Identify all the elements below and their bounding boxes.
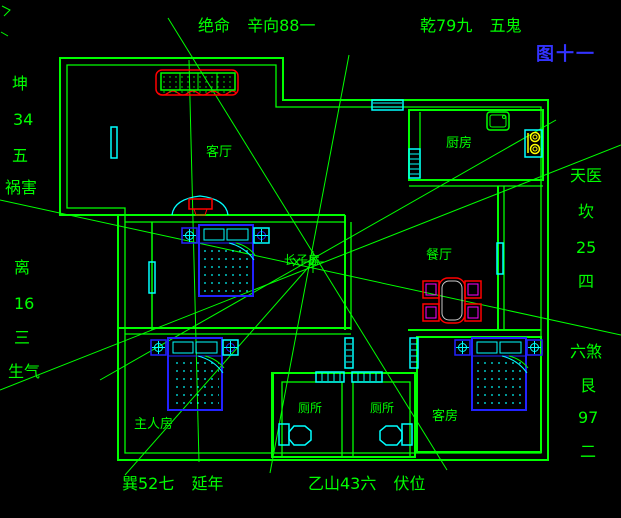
bed-guest — [472, 338, 528, 410]
room-label-toilet-left: 厕所 — [298, 402, 322, 414]
annotation-tianyi: 天医 — [570, 168, 602, 184]
feng-shui-floor-plan: 绝命 辛向88一 乾79九 五鬼 图十一 坤 34 五 祸害 离 16 三 生气… — [0, 0, 621, 518]
furniture — [151, 70, 542, 445]
annotation-li-number: 16 — [14, 296, 34, 312]
kitchen-sink — [487, 112, 509, 130]
nightstand — [223, 340, 238, 355]
room-label-eldest-son: 长子房 — [284, 254, 320, 266]
annotation-kan: 坎 — [578, 204, 594, 220]
edge-artifact-marks — [1, 6, 10, 36]
annotation-top-left: 绝命 辛向88一 — [198, 18, 315, 34]
annotation-kun-star: 五 — [12, 148, 28, 164]
annotation-shengqi: 生气 — [8, 364, 40, 380]
nightstand — [254, 228, 269, 243]
annotation-li-star: 三 — [14, 330, 30, 346]
nightstand — [151, 340, 166, 355]
room-label-kitchen: 厨房 — [446, 137, 472, 150]
living-left-window — [111, 127, 117, 158]
nightstand — [182, 228, 197, 243]
annotation-gen-star: 二 — [580, 444, 596, 460]
annotation-kun: 坤 — [12, 76, 28, 92]
tv-cabinet — [172, 196, 228, 215]
room-label-toilet-right: 厕所 — [370, 402, 394, 414]
annotation-bottom-left: 巽52七 延年 — [122, 476, 223, 492]
annotation-huohai: 祸害 — [5, 180, 37, 196]
bed-eldest-son — [199, 225, 255, 296]
toilet-fixture-left — [279, 424, 311, 445]
room-label-guest: 客房 — [432, 410, 458, 423]
room-label-dining: 餐厅 — [426, 249, 452, 262]
sofa — [156, 70, 238, 95]
nightstand — [527, 340, 542, 355]
top-step-window — [372, 100, 403, 110]
annotation-bottom-center: 乙山43六 伏位 — [308, 476, 425, 492]
dining-table-set — [423, 278, 481, 323]
nightstand — [455, 340, 470, 355]
annotation-kan-number: 25 — [576, 240, 596, 256]
annotation-gen-number: 97 — [578, 410, 598, 426]
kitchen-stove — [525, 130, 542, 157]
annotation-kan-star: 四 — [578, 274, 594, 290]
pipe-duct-left — [345, 338, 353, 368]
kitchen-left-window — [409, 149, 420, 178]
annotation-liusha: 六煞 — [570, 344, 602, 360]
annotation-top-right: 乾79九 五鬼 — [420, 18, 521, 34]
annotation-kun-number: 34 — [13, 112, 33, 128]
room-label-master: 主人房 — [134, 418, 173, 431]
annotation-li: 离 — [14, 260, 30, 276]
bed-master — [168, 338, 224, 410]
room-label-living: 客厅 — [206, 146, 232, 159]
figure-caption: 图十一 — [536, 46, 596, 64]
annotation-gen: 艮 — [580, 378, 596, 394]
toilet-fixture-right — [380, 424, 412, 445]
